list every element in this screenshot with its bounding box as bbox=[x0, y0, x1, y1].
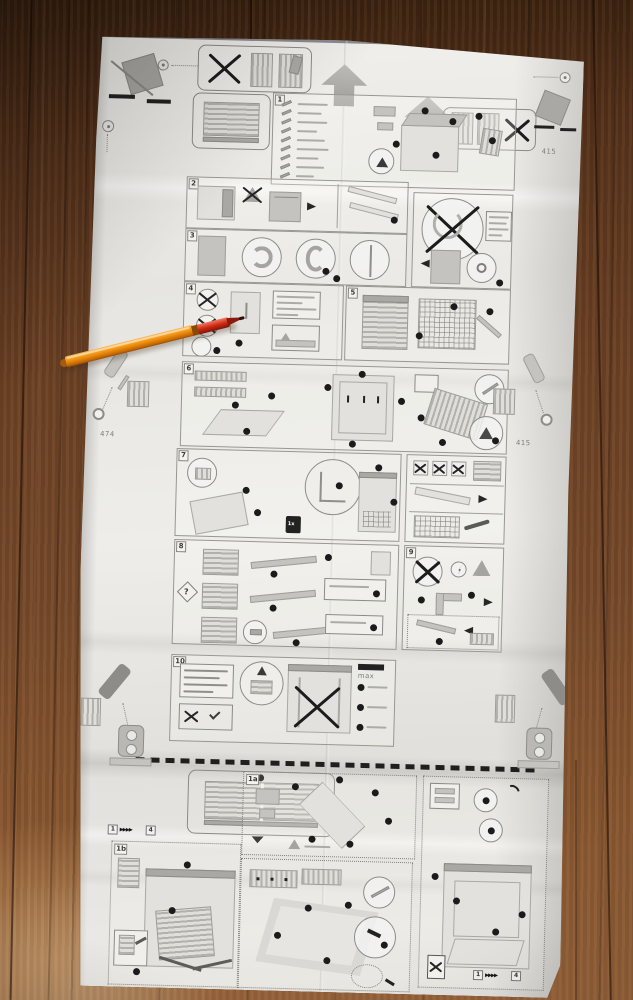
callout-dot bbox=[372, 789, 379, 796]
tip-over-warning-icon bbox=[532, 91, 579, 132]
margin-roller-diagram-right: 415 bbox=[482, 352, 574, 450]
callout-dot bbox=[432, 873, 439, 880]
door-variant bbox=[202, 549, 239, 576]
step-label: 7 bbox=[178, 450, 188, 461]
step-label: 4 bbox=[186, 283, 196, 294]
rail-inset-box bbox=[324, 578, 387, 602]
sequence-arrows: ▸▸▸▸ bbox=[120, 825, 132, 835]
washer-ring bbox=[92, 408, 104, 420]
electrical-warning-circle bbox=[450, 561, 466, 577]
callout-dot bbox=[333, 275, 340, 282]
screw-mark bbox=[377, 396, 379, 403]
step-label: 5 bbox=[348, 287, 358, 298]
open-door-grid bbox=[363, 511, 391, 528]
arrow-right-icon bbox=[478, 495, 491, 503]
instruction-leaflet: 415 1 bbox=[70, 34, 585, 999]
dotted-leader-line bbox=[172, 65, 198, 67]
note-line bbox=[276, 314, 298, 317]
bracket-detail-circle bbox=[243, 620, 268, 645]
callout-dot bbox=[488, 827, 495, 834]
door-variant bbox=[202, 583, 239, 610]
bracket-part bbox=[435, 593, 444, 615]
template-detail-circle bbox=[187, 457, 218, 488]
callout-dot bbox=[356, 724, 363, 731]
window-panel-icon bbox=[473, 461, 502, 482]
warning-triangle-icon bbox=[288, 839, 300, 849]
bracket-stack bbox=[255, 788, 279, 805]
panel-step-2: 2 bbox=[185, 176, 408, 234]
arrow-left-icon bbox=[417, 259, 430, 267]
worktop-edge bbox=[414, 487, 470, 506]
note-line bbox=[489, 228, 509, 231]
note-line bbox=[184, 676, 220, 679]
panel-bit bbox=[118, 935, 135, 955]
open-door-flap bbox=[447, 938, 525, 966]
dotted-leader-line bbox=[535, 390, 544, 413]
stand-base bbox=[517, 760, 559, 769]
dishwasher-body bbox=[430, 250, 461, 285]
sequence-end: 4 bbox=[511, 971, 521, 981]
once-label: 1x bbox=[288, 521, 295, 527]
panel-door-warnings bbox=[404, 454, 506, 545]
template-strip bbox=[249, 869, 297, 888]
floor-plank-seam bbox=[592, 0, 611, 1000]
callout-dot bbox=[381, 942, 388, 949]
spec-line bbox=[366, 726, 386, 729]
pedestal-stand bbox=[526, 727, 553, 760]
sequence-end: 4 bbox=[146, 825, 156, 835]
callout-dot bbox=[184, 861, 191, 868]
dotted-leader-line bbox=[534, 76, 558, 78]
cross-icon bbox=[429, 960, 443, 974]
stack-layer bbox=[435, 797, 455, 804]
row-divider bbox=[410, 483, 504, 486]
floor-plank-seam bbox=[10, 0, 33, 1000]
callout-dot bbox=[235, 340, 242, 347]
parts-text bbox=[298, 112, 322, 115]
parts-text bbox=[296, 166, 324, 169]
floor-plank-seam bbox=[48, 0, 71, 1000]
dimension-label-right: 415 bbox=[516, 439, 531, 447]
screw-mark bbox=[347, 395, 349, 402]
panel-stack-icon bbox=[117, 858, 140, 889]
roller-tool bbox=[522, 352, 546, 384]
illustration-box bbox=[271, 324, 320, 351]
cavity bbox=[453, 880, 520, 938]
callout-dot bbox=[345, 902, 352, 909]
callout-dot bbox=[390, 499, 397, 506]
parts-text bbox=[297, 148, 329, 151]
note-line bbox=[184, 669, 228, 672]
clamp-magnifier-circle bbox=[239, 661, 284, 706]
callout-dot bbox=[268, 392, 275, 399]
note-line bbox=[276, 308, 316, 311]
max-label: max bbox=[358, 672, 375, 680]
door-front-preview-box bbox=[192, 92, 271, 150]
pedestal-stand bbox=[118, 725, 145, 758]
callout-dot bbox=[324, 384, 331, 391]
worktop-strip bbox=[146, 868, 236, 878]
callout-dot bbox=[468, 592, 475, 599]
wheel bbox=[476, 263, 486, 273]
paper-top-edge-shadow bbox=[94, 34, 584, 50]
note-line bbox=[304, 846, 330, 849]
floor-bar bbox=[560, 128, 576, 131]
worktop-strip bbox=[288, 664, 352, 673]
sequence-start: 1 bbox=[473, 970, 483, 980]
rail-inset-box bbox=[325, 614, 384, 636]
callout-dot bbox=[269, 605, 276, 612]
inset-line bbox=[330, 621, 366, 624]
panel-no-kink-warning bbox=[411, 192, 513, 290]
door-edge bbox=[370, 551, 391, 576]
door-inner-frame bbox=[338, 381, 387, 434]
callout-dot bbox=[133, 968, 140, 975]
callout-dot bbox=[243, 487, 250, 494]
dimension-label-left: 474 bbox=[100, 430, 115, 438]
callout-dot bbox=[254, 509, 261, 516]
note-line bbox=[183, 690, 213, 693]
panel-icon bbox=[495, 694, 516, 723]
top-rail bbox=[363, 295, 409, 303]
step-label: 8 bbox=[176, 541, 186, 552]
hose-detail-circle bbox=[295, 238, 336, 279]
support-leg bbox=[192, 959, 232, 971]
spec-header-bar bbox=[358, 664, 384, 671]
warning-triangle-icon bbox=[472, 560, 490, 576]
callout-dot bbox=[346, 841, 353, 848]
screw-icon bbox=[281, 118, 291, 125]
left-edge-shade bbox=[70, 34, 111, 986]
grid-paper bbox=[413, 515, 460, 538]
screw bbox=[371, 886, 390, 898]
callout-dot bbox=[370, 624, 377, 631]
lightning-bolt-icon bbox=[457, 564, 461, 575]
hose-detail-circle bbox=[241, 237, 282, 278]
hinge-detail-circle bbox=[479, 818, 504, 843]
gap-line bbox=[369, 245, 372, 277]
no-tilt-warning-box bbox=[197, 44, 312, 93]
floor-bar bbox=[147, 99, 171, 104]
callout-dot bbox=[357, 684, 364, 691]
screw-icon bbox=[280, 172, 290, 179]
panel-step-1: 1 bbox=[271, 92, 517, 190]
plinth-bar bbox=[203, 137, 259, 143]
pen-nib bbox=[238, 316, 245, 320]
template-bit bbox=[195, 468, 211, 480]
parts-text bbox=[296, 157, 318, 160]
recycle-bin-icon bbox=[427, 955, 446, 979]
panel-step-3: 3 bbox=[184, 228, 407, 287]
note-line bbox=[277, 296, 315, 299]
bracket-detail-circle bbox=[353, 916, 396, 959]
bracket-part bbox=[377, 122, 393, 130]
fastener-parts-list bbox=[278, 102, 340, 180]
arrow-right-icon bbox=[307, 202, 320, 210]
panel-step-6: 6 bbox=[180, 361, 509, 455]
appliance-top-face bbox=[401, 113, 467, 127]
panel-hinge-adjust: 1 ▸▸▸▸ 4 bbox=[418, 776, 550, 991]
dotted-leader-line bbox=[102, 387, 112, 409]
dotted-detail-circle bbox=[351, 964, 384, 989]
worktop-strip bbox=[359, 472, 397, 479]
crossed-mini-icon bbox=[413, 460, 428, 475]
clamp-bar bbox=[416, 619, 456, 634]
question-mark: ? bbox=[184, 587, 189, 597]
callout-dot bbox=[308, 836, 315, 843]
rail-part bbox=[476, 315, 502, 339]
pencil-icon bbox=[135, 937, 147, 945]
parts-text bbox=[297, 139, 325, 142]
parts-text bbox=[296, 175, 314, 177]
dotted-leader-line bbox=[536, 708, 542, 728]
panel-template-on-door bbox=[238, 858, 413, 992]
edge-line bbox=[319, 500, 345, 503]
inset-line bbox=[329, 585, 369, 588]
niche-shadow bbox=[222, 189, 234, 217]
note-line bbox=[489, 216, 509, 219]
screw-icon bbox=[281, 127, 291, 134]
template-strip bbox=[195, 370, 247, 381]
panel-stack-icon bbox=[429, 783, 460, 810]
panel-icon bbox=[493, 388, 516, 415]
door-line bbox=[274, 197, 298, 199]
roller-tool-dark bbox=[97, 662, 132, 700]
callout-dot bbox=[439, 439, 446, 446]
panel-icon bbox=[250, 53, 273, 88]
callout-dot bbox=[436, 638, 443, 645]
skyline-shape bbox=[281, 333, 291, 341]
callout-dot bbox=[483, 797, 490, 804]
door-gap-detail-circle bbox=[349, 240, 390, 281]
door-standing-view bbox=[331, 374, 395, 442]
floor-bar bbox=[534, 125, 554, 129]
roller-tool-dark bbox=[540, 667, 573, 706]
callout-dot bbox=[357, 704, 364, 711]
screw-detail-circle bbox=[363, 876, 396, 909]
hinge-detail-circle bbox=[473, 788, 498, 813]
callout-dot bbox=[373, 590, 380, 597]
screw-icon bbox=[281, 136, 291, 143]
callout-dot bbox=[292, 783, 299, 790]
mounting-grid-panel bbox=[417, 298, 476, 350]
dimension-label-right-top: 415 bbox=[542, 147, 557, 155]
crossed-dial-icon bbox=[196, 289, 219, 312]
wheel-detail-circle bbox=[466, 253, 497, 284]
magnifier-detail bbox=[368, 148, 395, 175]
photo-of-instruction-sheet: 415 1 bbox=[0, 0, 633, 1000]
panel-step-9: 9 bbox=[402, 545, 505, 653]
check-icon bbox=[209, 709, 220, 720]
hinge-pivot-icon bbox=[102, 120, 114, 132]
arrow-right-icon bbox=[484, 598, 497, 606]
detail-glyph bbox=[376, 157, 388, 167]
worktop-strip bbox=[444, 863, 532, 873]
drill-mark bbox=[270, 878, 273, 881]
margin-stand-diagram-left bbox=[75, 660, 188, 773]
bracket-part bbox=[373, 106, 395, 117]
dishwasher-with-panel bbox=[143, 868, 236, 968]
callout-dot bbox=[232, 401, 239, 408]
note-line bbox=[184, 683, 228, 686]
appliance-exploded-body bbox=[400, 125, 459, 173]
mounting-rail bbox=[250, 590, 316, 603]
cross-icon bbox=[206, 54, 243, 83]
corner-magnifier-circle bbox=[304, 458, 361, 515]
big-cross-icon bbox=[290, 684, 343, 729]
callout-dot bbox=[349, 441, 356, 448]
sequence-label: 1 ▸▸▸▸ 4 bbox=[108, 824, 178, 838]
screw-icon bbox=[282, 100, 292, 107]
crossed-mini-icon bbox=[432, 461, 447, 476]
stand-hole bbox=[534, 733, 545, 744]
one-time-warning-box: 1x bbox=[286, 516, 301, 533]
sequence-arrows: ▸▸▸▸ bbox=[485, 970, 497, 980]
callout-dot bbox=[475, 113, 482, 120]
floor-plank-seam bbox=[575, 760, 577, 1000]
door-panel bbox=[203, 102, 260, 137]
note-text-box bbox=[272, 291, 321, 320]
panel-divider bbox=[337, 184, 339, 228]
cross-icon bbox=[241, 185, 263, 205]
hose-bend bbox=[250, 246, 273, 269]
stand-hole bbox=[534, 746, 545, 757]
sequence-start: 1 bbox=[108, 824, 118, 834]
callout-dot bbox=[322, 268, 329, 275]
template-strip bbox=[194, 386, 246, 397]
dotted-leader-line bbox=[122, 703, 128, 725]
crossed-mini-icon bbox=[451, 461, 466, 476]
panel-step-7: 7 1x bbox=[174, 448, 401, 542]
dishwasher-body bbox=[197, 236, 226, 277]
callout-dot bbox=[375, 464, 382, 471]
screw-icon bbox=[281, 109, 291, 116]
margin-stand-diagram-right bbox=[489, 664, 602, 777]
note-line bbox=[489, 222, 507, 224]
spec-line bbox=[367, 706, 387, 709]
stack-layer bbox=[435, 788, 455, 795]
stand-hole bbox=[126, 730, 137, 741]
screw-icon bbox=[280, 154, 290, 161]
door-flat-view bbox=[189, 492, 248, 535]
pencil-icon bbox=[464, 519, 490, 530]
callout-dot bbox=[398, 398, 405, 405]
callout-dot bbox=[385, 818, 392, 825]
inset-box bbox=[113, 930, 148, 967]
note-line bbox=[488, 234, 502, 236]
step-label: 3 bbox=[187, 230, 197, 241]
dishwasher-body bbox=[269, 191, 302, 222]
clamp-sub-box bbox=[407, 614, 500, 650]
stand-base bbox=[109, 757, 151, 766]
worktop-board bbox=[347, 186, 397, 204]
callout-dot bbox=[486, 308, 493, 315]
screw-icon bbox=[280, 163, 290, 170]
step-label: 1a bbox=[246, 774, 259, 785]
door-variant bbox=[201, 617, 238, 644]
template-strip bbox=[301, 868, 341, 885]
sequence-label: 1 ▸▸▸▸ 4 bbox=[473, 970, 543, 984]
curved-arrow-icon bbox=[501, 782, 523, 804]
pen-mark bbox=[385, 978, 395, 986]
crossed-circle-icon bbox=[412, 556, 443, 587]
callout-dot bbox=[391, 217, 398, 224]
callout-dot bbox=[393, 141, 400, 148]
spec-line bbox=[368, 686, 388, 689]
note-text-box bbox=[485, 211, 512, 242]
mounting-rail bbox=[273, 627, 329, 639]
hinge-pivot-icon bbox=[559, 72, 570, 83]
clamp-panel bbox=[250, 680, 272, 695]
tilted-appliance-shape bbox=[535, 90, 571, 126]
detail-glyph bbox=[367, 929, 381, 939]
screw-mark bbox=[363, 396, 365, 403]
stand-hole bbox=[126, 744, 137, 755]
panel-step-1b: 1b bbox=[108, 840, 242, 987]
row-divider bbox=[409, 511, 503, 514]
parts-text bbox=[297, 121, 327, 124]
parts-text bbox=[297, 130, 317, 133]
drill-mark bbox=[284, 878, 287, 881]
panel-step-1a: 1a bbox=[241, 771, 417, 860]
callout-dot bbox=[213, 347, 220, 354]
callout-dot bbox=[336, 482, 343, 489]
callout-dot bbox=[496, 279, 503, 286]
panel-icon bbox=[127, 381, 150, 408]
step-label: 6 bbox=[184, 363, 194, 374]
parts-text bbox=[298, 103, 328, 106]
panel-icon bbox=[80, 698, 101, 727]
cabinet-niche bbox=[197, 185, 236, 220]
bracket-stack bbox=[259, 808, 275, 818]
callout-dot bbox=[293, 639, 300, 646]
edge-line bbox=[319, 472, 322, 502]
note-line bbox=[277, 302, 303, 305]
dotted-leader-line bbox=[106, 134, 107, 152]
bracket bbox=[250, 629, 262, 635]
washer-ring bbox=[540, 414, 552, 426]
step-label: 1b bbox=[114, 844, 127, 855]
callout-dot bbox=[325, 554, 332, 561]
arrow-up-glyph bbox=[257, 666, 267, 675]
panel-step-8: 8 ? bbox=[172, 539, 400, 650]
screw-icon bbox=[280, 145, 290, 152]
mounting-rail bbox=[251, 556, 317, 569]
callout-dot bbox=[336, 776, 343, 783]
callout-dot bbox=[418, 596, 425, 603]
skyline-shape bbox=[275, 340, 315, 348]
hose-loop bbox=[432, 209, 463, 240]
panel-step-10: 10 max bbox=[169, 654, 396, 747]
leaning-door-panel bbox=[155, 906, 215, 960]
floor-bar bbox=[109, 94, 135, 99]
furniture-door-panel bbox=[361, 295, 408, 350]
step-label: 9 bbox=[406, 547, 416, 558]
callout-dot bbox=[270, 571, 277, 578]
panel-bit bbox=[470, 633, 494, 646]
drill-mark bbox=[256, 877, 259, 880]
